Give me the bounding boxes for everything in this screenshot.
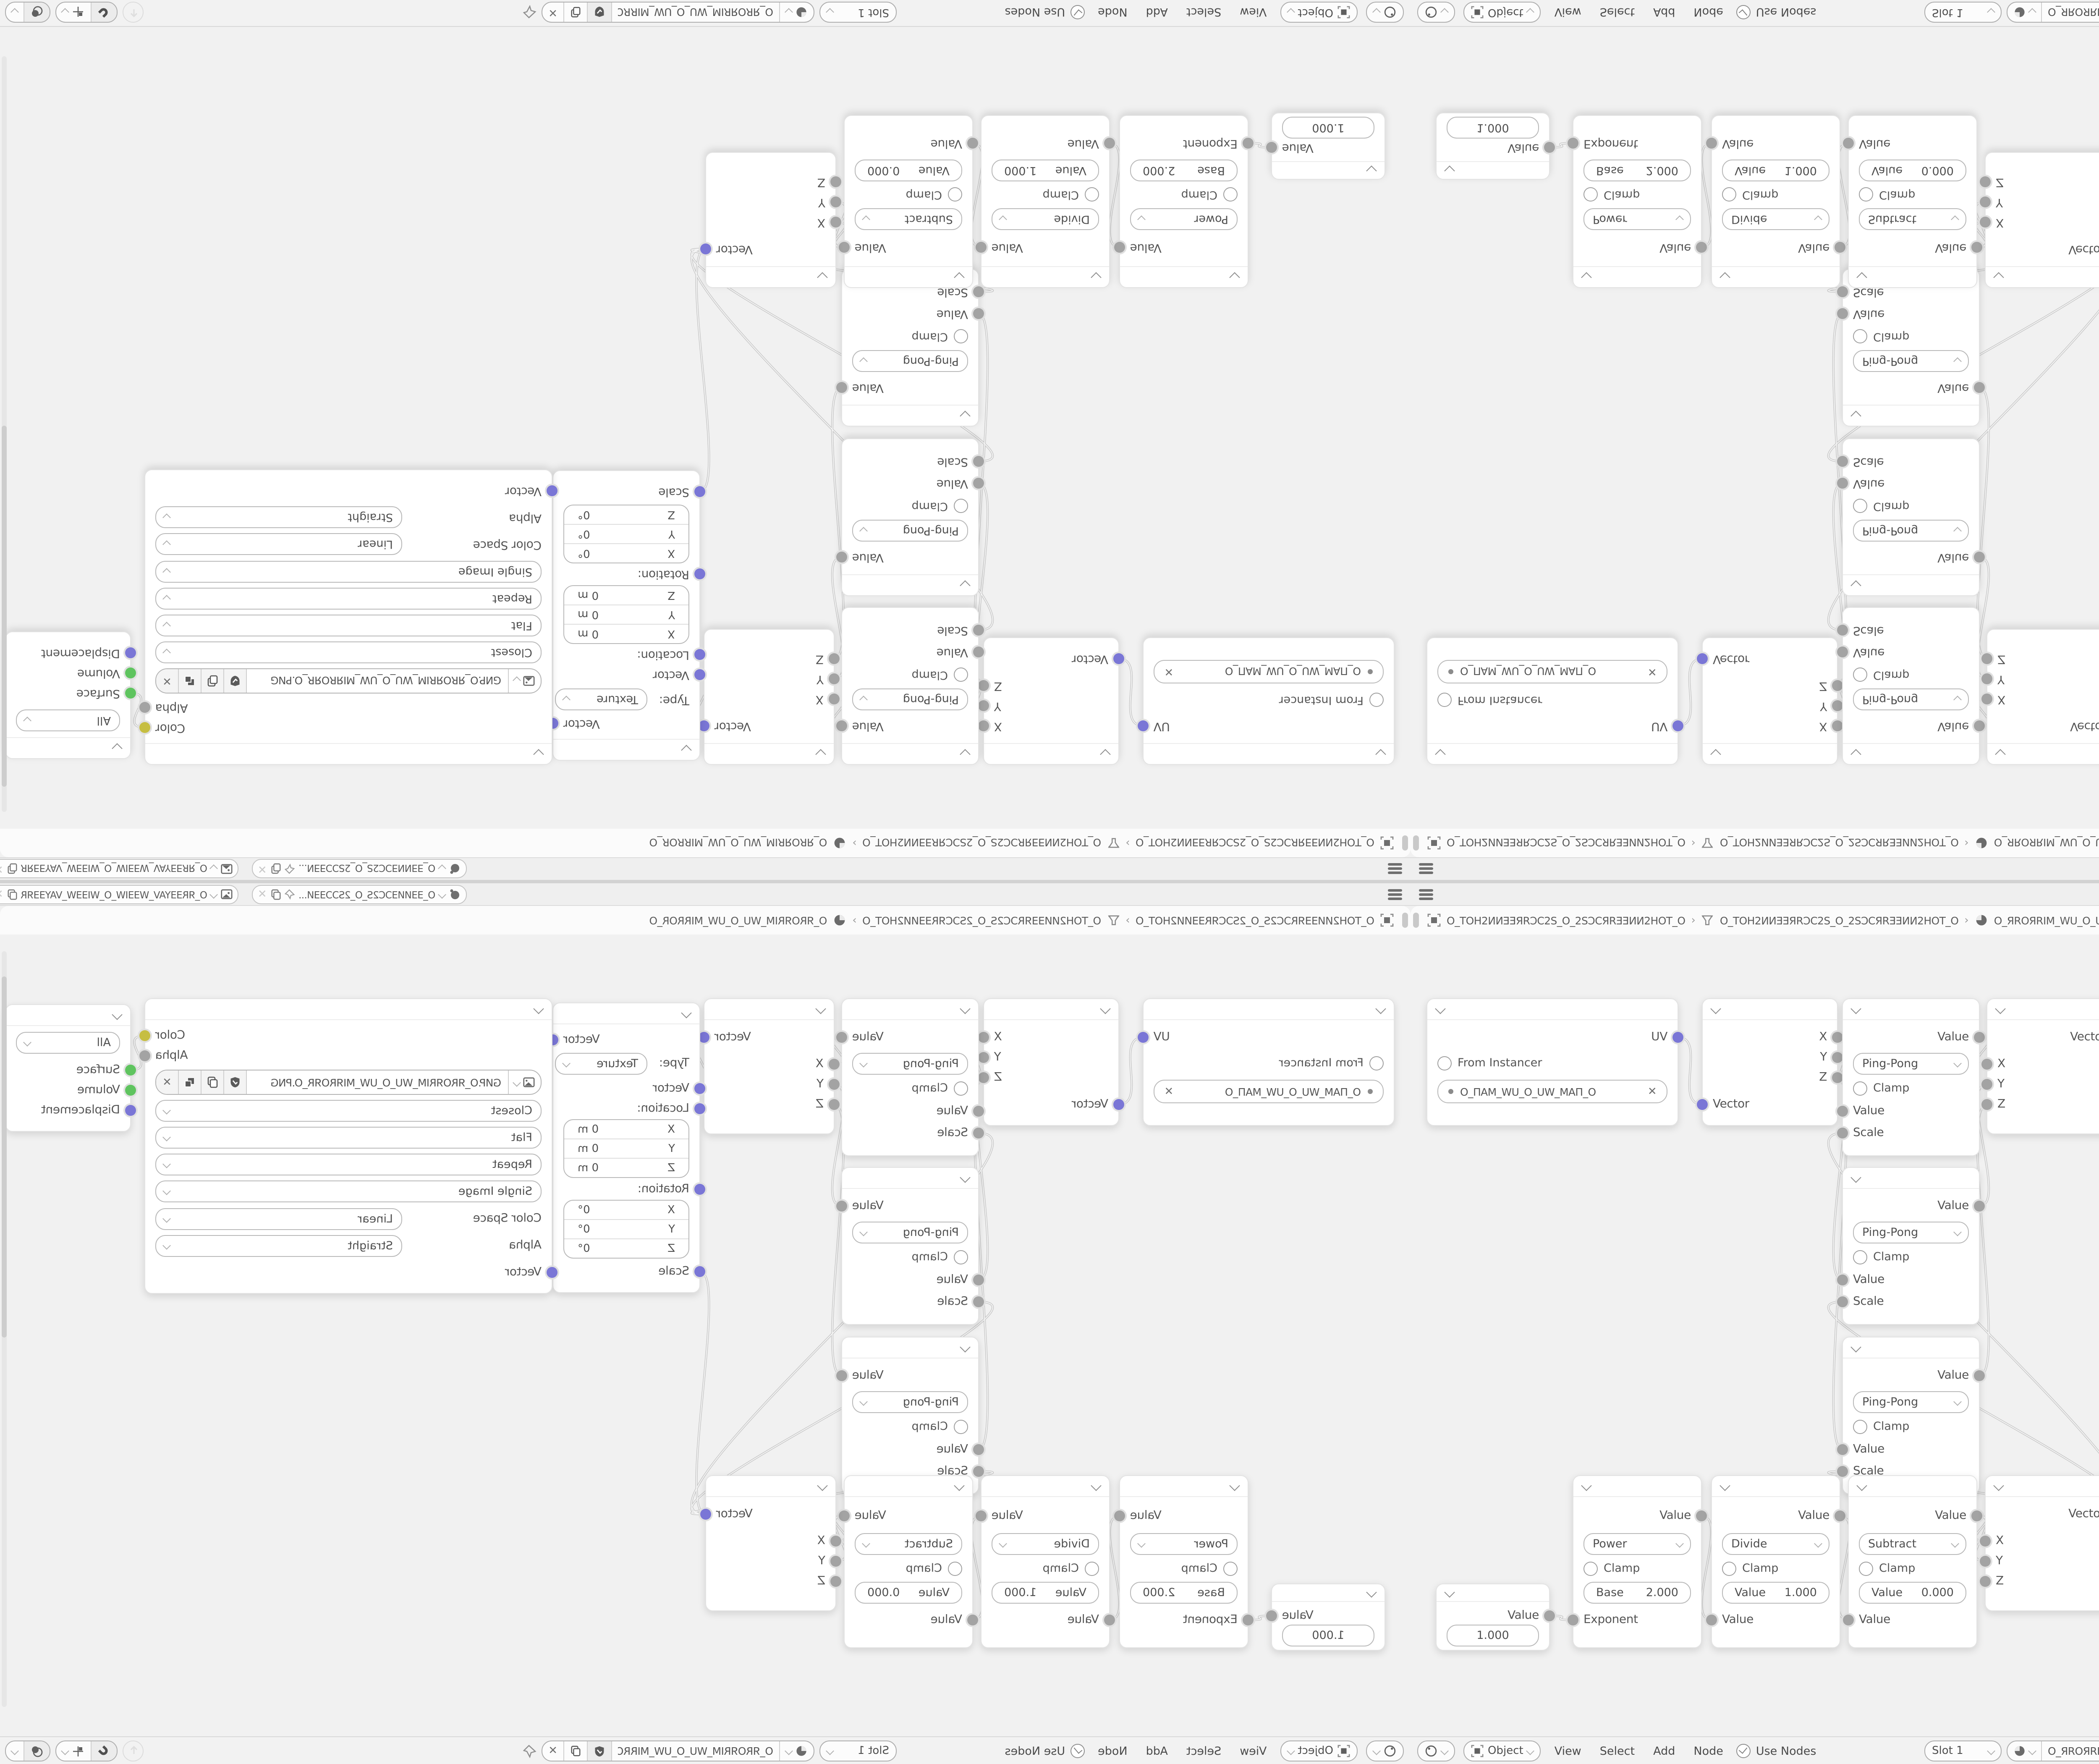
use-nodes-checkbox[interactable]: Use Nodes [1005, 5, 1085, 19]
checkbox-icon[interactable] [954, 1081, 968, 1095]
checkbox-icon[interactable] [1853, 1419, 1867, 1434]
pin-icon[interactable] [523, 5, 537, 19]
uv-map-selector[interactable]: O_ПAM_WU_O_UW_MAП_O ✕ [1154, 1080, 1384, 1103]
menu-view[interactable]: View [1549, 1744, 1586, 1758]
socket-y-input[interactable] [829, 1079, 840, 1090]
use-nodes-checkbox[interactable]: Use Nodes [1005, 1744, 1085, 1758]
clamp-checkbox[interactable]: Clamp [992, 186, 1099, 203]
socket-z-input[interactable] [1981, 653, 1992, 664]
socket-value-output[interactable] [1114, 1510, 1125, 1521]
node-math-pingpong-1[interactable]: Value Ping-Pong Clamp Value Scale [1842, 998, 1980, 1156]
copy-icon[interactable] [7, 863, 18, 874]
socket-vector-input[interactable] [547, 1267, 557, 1278]
socket-value-input[interactable] [1837, 1444, 1848, 1455]
node-canvas[interactable]: UV From Instancer O_ПAM_WU_O_UW_MAП_O ✕ … [1411, 27, 2099, 829]
socket-vector-input[interactable] [694, 669, 705, 680]
checkbox-icon[interactable] [1583, 1561, 1598, 1576]
breadcrumb-material[interactable]: O_ЯROЯRIM_WU_O_UW_MIRROR_O [649, 837, 827, 849]
node-math-pingpong-1[interactable]: Value Ping-Pong Clamp Value Scale [1842, 607, 1980, 765]
node-combine-xyz-top[interactable]: Vector X Y Z [704, 998, 835, 1134]
image-name[interactable]: GИP.O_ЯROЯRIM_WU_O_UW_MIЯROЯR_O.PNG [247, 669, 509, 693]
socket-x-output[interactable] [978, 720, 989, 731]
collapse-chevron-icon[interactable] [1100, 749, 1110, 759]
socket-vector-input[interactable] [694, 1083, 705, 1094]
falloff-circles-icon[interactable] [24, 1741, 50, 1761]
node-math-divide[interactable]: Value Divide Clamp Value1.000 Value [1711, 1475, 1840, 1648]
menu-select[interactable]: Select [1595, 1744, 1640, 1758]
socket-value-output[interactable] [836, 720, 847, 731]
shader-type-dropdown[interactable]: Object [1280, 2, 1358, 23]
from-instancer-checkbox[interactable]: From Instancer [1154, 692, 1384, 709]
socket-location-input[interactable] [694, 1103, 705, 1114]
operation-dropdown[interactable]: Divide [992, 1533, 1099, 1555]
clamp-checkbox[interactable]: Clamp [1722, 1560, 1829, 1577]
collapse-chevron-icon[interactable] [1850, 411, 1861, 421]
node-uv-map[interactable]: UV From Instancer O_ПAM_WU_O_UW_MAП_O ✕ [1143, 998, 1395, 1126]
node-mapping[interactable]: Vector Type: Texture Vector Location: X0… [552, 470, 700, 761]
collapse-chevron-icon[interactable] [960, 411, 970, 421]
node-uv-map[interactable]: UV From Instancer O_ПAM_WU_O_UW_MAП_O ✕ [1426, 637, 1678, 765]
clamp-checkbox[interactable]: Clamp [1583, 186, 1691, 203]
socket-rotation-input[interactable] [694, 568, 705, 579]
unlink-button[interactable]: ✕ [542, 1741, 564, 1761]
socket-volume-input[interactable] [125, 667, 136, 678]
collapse-chevron-icon[interactable] [112, 743, 122, 754]
auto-render-ghost-button[interactable] [123, 1740, 144, 1761]
checkbox-icon[interactable] [1853, 1250, 1867, 1264]
menu-node[interactable]: Node [1688, 5, 1728, 19]
checkbox-icon[interactable] [1722, 188, 1736, 202]
operation-dropdown[interactable]: Subtract [855, 1533, 962, 1555]
pack-image-button[interactable] [179, 669, 202, 693]
socket-scale-input[interactable] [1837, 1128, 1848, 1138]
color-space-dropdown[interactable]: Linear [155, 1208, 402, 1230]
operation-dropdown[interactable]: Power [1130, 1533, 1238, 1555]
socket-value-output[interactable] [836, 1201, 847, 1212]
node-value[interactable]: Value 1.000 [1436, 1583, 1550, 1651]
node-header[interactable] [1427, 743, 1678, 764]
image-browse-dropdown[interactable] [509, 1070, 541, 1094]
socket-value-output[interactable] [976, 1510, 987, 1521]
socket-y-output[interactable] [978, 1052, 989, 1063]
socket-value-output[interactable] [976, 242, 987, 253]
snap-target-dropdown[interactable] [56, 3, 92, 22]
socket-y-input[interactable] [1980, 196, 1991, 207]
socket-y-input[interactable] [830, 196, 841, 207]
from-instancer-checkbox[interactable]: From Instancer [1154, 1055, 1384, 1071]
node-image-texture[interactable]: Color Alpha GИP.O_ЯROЯRIM_WU_O_UW_MIЯROЯ… [144, 998, 552, 1294]
color-space-dropdown[interactable]: Linear [155, 533, 402, 555]
menu-node[interactable]: Node [1093, 1744, 1132, 1758]
rotation-vector-field[interactable]: X0° Y0° Z0° [563, 1200, 689, 1259]
operation-dropdown[interactable]: Ping-Pong [852, 350, 968, 372]
output-target-dropdown[interactable]: All [16, 709, 120, 731]
node-math-pingpong-3[interactable]: Value Ping-Pong Clamp Value Scale [1842, 1337, 1980, 1494]
unlink-button[interactable]: ✕ [542, 3, 564, 22]
clamp-checkbox[interactable]: Clamp [852, 1418, 968, 1435]
location-vector-field[interactable]: X0 m Y0 m Z0 m [563, 1119, 689, 1178]
clamp-checkbox[interactable]: Clamp [1583, 1560, 1691, 1577]
material-name[interactable]: O_ЯROЯRIM_WU_O_UW_MIRROR_O [618, 6, 773, 18]
base-field[interactable]: Base2.000 [1583, 160, 1691, 181]
image-datablock-row[interactable]: GИP.O_ЯROЯRIM_WU_O_UW_MIЯROЯR_O.PNG ✕ [155, 1070, 542, 1095]
checkbox-icon[interactable] [1722, 1561, 1736, 1576]
collapse-chevron-icon[interactable] [1375, 749, 1386, 759]
collapse-chevron-icon[interactable] [1856, 1480, 1867, 1491]
material-datablock-widget[interactable]: O_ЯROЯRIM_WU_O_UW_MIRROR_O ✕ [542, 1740, 814, 1761]
material-name[interactable]: O_ЯROЯRIM_WU_O_UW_MIRROR_O [2048, 6, 2099, 18]
checkbox-icon[interactable] [1369, 1056, 1384, 1070]
socket-value-input[interactable] [1104, 1615, 1115, 1625]
menu-select[interactable]: Select [1181, 1744, 1226, 1758]
operation-dropdown[interactable]: Power [1583, 1533, 1691, 1555]
value-field[interactable]: 1.000 [1447, 1625, 1539, 1646]
socket-value-output[interactable] [836, 1370, 847, 1381]
collapse-chevron-icon[interactable] [1091, 1480, 1101, 1491]
checkbox-checked-icon[interactable] [1737, 5, 1751, 19]
material-browse-dropdown[interactable] [780, 1741, 814, 1761]
clamp-checkbox[interactable]: Clamp [1130, 186, 1238, 203]
node-math-subtract[interactable]: Value Subtract Clamp Value0.000 Value [1848, 1475, 1977, 1648]
node-canvas[interactable]: UV From Instancer O_ПAM_WU_O_UW_MAП_O ✕ … [1411, 934, 2099, 1736]
socket-value-output[interactable] [836, 1032, 847, 1043]
node-math-subtract[interactable]: Value Subtract Clamp Value0.000 Value [844, 1475, 973, 1648]
operation-dropdown[interactable]: Ping-Pong [852, 1222, 968, 1243]
collapse-chevron-icon[interactable] [960, 1342, 970, 1352]
falloff-circles-icon[interactable] [24, 3, 50, 22]
value-field[interactable]: Value0.000 [1859, 1582, 1966, 1604]
socket-color-output[interactable] [139, 722, 150, 733]
base-field[interactable]: Base2.000 [1583, 1582, 1691, 1604]
socket-x-output[interactable] [1832, 1032, 1843, 1043]
checkbox-icon[interactable] [1583, 188, 1598, 202]
checkbox-icon[interactable] [1369, 693, 1384, 707]
node-header[interactable] [1144, 999, 1394, 1020]
shader-type-dropdown[interactable]: Object [1463, 1740, 1541, 1761]
editor-type-dropdown[interactable] [1366, 1740, 1404, 1761]
collapse-chevron-icon[interactable] [1366, 1587, 1377, 1597]
socket-value-input[interactable] [973, 1275, 984, 1285]
node-combine-xyz-bottom[interactable]: Vector X Y Z [1985, 152, 2099, 288]
socket-value-output[interactable] [1544, 142, 1555, 153]
location-vector-field[interactable]: X0 m Y0 m Z0 m [563, 585, 689, 644]
clamp-checkbox[interactable]: Clamp [1130, 1560, 1238, 1577]
socket-x-output[interactable] [978, 1032, 989, 1043]
operation-dropdown[interactable]: Ping-Pong [1853, 1391, 1969, 1413]
checkbox-icon[interactable] [1853, 330, 1867, 344]
editor-type-dropdown[interactable] [1417, 1740, 1455, 1761]
material-datablock-widget[interactable]: O_ЯROЯRIM_WU_O_UW_MIRROR_O ✕ [2007, 2, 2099, 23]
checkbox-checked-icon[interactable] [1070, 5, 1084, 19]
node-separate-xyz[interactable]: X Y Z Vector [983, 637, 1119, 765]
operation-dropdown[interactable]: Ping-Pong [1853, 1222, 1969, 1243]
socket-value-output[interactable] [1971, 1510, 1982, 1521]
collapse-chevron-icon[interactable] [1229, 1480, 1240, 1491]
socket-surface-input[interactable] [125, 1065, 136, 1076]
socket-value-output[interactable] [1971, 242, 1982, 253]
operation-dropdown[interactable]: Ping-Pong [852, 1391, 968, 1413]
socket-scale-input[interactable] [1837, 286, 1848, 297]
socket-scale-input[interactable] [973, 1128, 984, 1138]
socket-x-output[interactable] [1832, 720, 1843, 731]
collapse-chevron-icon[interactable] [1444, 165, 1455, 176]
socket-x-input[interactable] [1981, 694, 1992, 704]
socket-x-input[interactable] [829, 1059, 840, 1070]
collapse-chevron-icon[interactable] [960, 1003, 970, 1014]
operation-dropdown[interactable]: Subtract [855, 208, 962, 230]
operation-dropdown[interactable]: Ping-Pong [852, 688, 968, 710]
collapse-chevron-icon[interactable] [1995, 1003, 2005, 1014]
node-combine-xyz-bottom[interactable]: Vector X Y Z [1985, 1475, 2099, 1611]
socket-exponent-input[interactable] [1568, 138, 1578, 149]
fake-user-shield-button[interactable] [224, 1070, 247, 1094]
operation-dropdown[interactable]: Subtract [1859, 1533, 1966, 1555]
node-material-output[interactable]: All Surface Volume Displacement [5, 631, 131, 759]
menu-select[interactable]: Select [1181, 5, 1226, 19]
output-target-dropdown[interactable]: All [16, 1032, 120, 1054]
collapse-chevron-icon[interactable] [1850, 580, 1861, 591]
socket-value-output[interactable] [1974, 1370, 1985, 1381]
collapse-chevron-icon[interactable] [815, 749, 826, 759]
clamp-checkbox[interactable]: Clamp [992, 1560, 1099, 1577]
material-slot-dropdown[interactable]: Slot 1 [819, 1740, 897, 1761]
snap-magnet-icon[interactable] [92, 3, 117, 22]
socket-uv-output[interactable] [1138, 1032, 1149, 1043]
breadcrumb-view-layer[interactable]: O_TOH2ͶИƎƎЯRƆC2S_O_2SƆCЯRƎƎИͶ2HOT_O [863, 914, 1101, 926]
menu-view[interactable]: View [1235, 5, 1272, 19]
node-math-pingpong-1[interactable]: Value Ping-Pong Clamp Value Scale [841, 998, 979, 1156]
use-nodes-checkbox[interactable]: Use Nodes [1737, 1744, 1816, 1758]
socket-x-input[interactable] [829, 694, 840, 704]
node-header[interactable] [1144, 743, 1394, 764]
socket-vector-input[interactable] [1697, 1099, 1708, 1110]
socket-uv-output[interactable] [1138, 720, 1149, 731]
material-slot-dropdown[interactable]: Slot 1 [1924, 2, 2002, 23]
collapse-chevron-icon[interactable] [815, 1003, 826, 1014]
clamp-checkbox[interactable]: Clamp [852, 498, 968, 515]
collapse-chevron-icon[interactable] [1993, 1480, 2004, 1491]
breadcrumb-view-layer[interactable]: O_TOH2ͶИƎƎЯRƆC2S_O_2SƆCЯRƎƎИͶ2HOT_O [1720, 837, 1958, 849]
socket-value-input[interactable] [1706, 1615, 1717, 1625]
collapse-chevron-icon[interactable] [1995, 749, 2005, 759]
image-name[interactable]: GИP.O_ЯROЯRIM_WU_O_UW_MIЯROЯR_O.PNG [247, 1070, 509, 1094]
socket-scale-input[interactable] [973, 1466, 984, 1477]
node-combine-xyz-bottom[interactable]: Vector X Y Z [705, 152, 836, 288]
socket-value-output[interactable] [1835, 242, 1845, 253]
pin-icon[interactable] [523, 1744, 537, 1758]
node-value[interactable]: Value 1.000 [1436, 113, 1550, 180]
fake-user-shield-button[interactable] [588, 1741, 612, 1761]
unlink-button[interactable]: ✕ [156, 669, 179, 693]
socket-y-output[interactable] [978, 700, 989, 711]
operation-dropdown[interactable]: Divide [1722, 1533, 1829, 1555]
menu-view[interactable]: View [1235, 1744, 1272, 1758]
alpha-mode-dropdown[interactable]: Straight [155, 506, 402, 528]
menu-add[interactable]: Add [1648, 5, 1680, 19]
node-combine-xyz-bottom[interactable]: Vector X Y Z [705, 1475, 836, 1611]
menu-add[interactable]: Add [1648, 1744, 1680, 1758]
socket-displacement-input[interactable] [125, 647, 136, 658]
socket-exponent-input[interactable] [1243, 1615, 1254, 1625]
material-browse-dropdown[interactable] [2007, 1741, 2041, 1761]
material-name[interactable]: O_ЯROЯRIM_WU_O_UW_MIRROR_O [618, 1745, 773, 1757]
collapse-chevron-icon[interactable] [1850, 1003, 1861, 1014]
interpolation-dropdown[interactable]: Closest [155, 1100, 542, 1122]
area-drag-handle[interactable] [1402, 835, 1408, 851]
socket-scale-input[interactable] [1837, 625, 1848, 636]
operation-dropdown[interactable]: Ping-Pong [1853, 688, 1969, 710]
from-instancer-checkbox[interactable]: From Instancer [1437, 1055, 1667, 1071]
copy-icon[interactable] [270, 889, 281, 900]
pin-icon[interactable] [285, 889, 296, 900]
socket-value-output[interactable] [1114, 242, 1125, 253]
socket-z-input[interactable] [1980, 1576, 1991, 1587]
socket-value-output[interactable] [1544, 1610, 1555, 1621]
socket-value-input[interactable] [967, 138, 978, 149]
socket-vector-output[interactable] [700, 1509, 711, 1520]
node-canvas[interactable]: UV From Instancer O_ПAM_WU_O_UW_MAП_O ✕ … [0, 27, 1411, 829]
value-field[interactable]: Value1.000 [1722, 1582, 1829, 1604]
collapse-chevron-icon[interactable] [1229, 272, 1240, 283]
breadcrumb-scene[interactable]: O_TOH2ͶИƎƎЯRƆC2S_O_2SƆCЯRƎƎИͶ2HOT_O [1447, 837, 1685, 849]
socket-y-output[interactable] [1832, 1052, 1843, 1063]
close-icon[interactable]: ✕ [1648, 665, 1657, 678]
node-uv-map[interactable]: UV From Instancer O_ПAM_WU_O_UW_MAП_O ✕ [1143, 637, 1395, 765]
hamburger-menu-icon[interactable] [1419, 863, 1433, 876]
breadcrumb-material[interactable]: O_ЯROЯRIM_WU_O_UW_MIRROR_O [1994, 914, 2099, 926]
socket-value-output[interactable] [1835, 1510, 1845, 1521]
checkbox-icon[interactable] [1085, 1561, 1099, 1576]
clamp-checkbox[interactable]: Clamp [852, 328, 968, 345]
socket-rotation-input[interactable] [694, 1184, 705, 1195]
shader-type-dropdown[interactable]: Object [1463, 2, 1541, 23]
value-field[interactable]: Value0.000 [855, 1582, 962, 1604]
socket-value-input[interactable] [967, 1615, 978, 1625]
checkbox-icon[interactable] [1223, 1561, 1238, 1576]
breadcrumb-material[interactable]: O_ЯROЯRIM_WU_O_UW_MIRROR_O [1994, 837, 2099, 849]
area-drag-handle[interactable] [1413, 835, 1419, 851]
snapping-widget[interactable] [55, 2, 118, 23]
checkbox-icon[interactable] [954, 1419, 968, 1434]
socket-scale-input[interactable] [973, 456, 984, 467]
node-math-pingpong-2[interactable]: Value Ping-Pong Clamp Value Scale [841, 438, 979, 596]
collapse-chevron-icon[interactable] [1100, 1003, 1110, 1014]
socket-location-input[interactable] [694, 649, 705, 660]
socket-uv-output[interactable] [1672, 1032, 1683, 1043]
socket-exponent-input[interactable] [1568, 1615, 1578, 1625]
socket-value-input[interactable] [1837, 646, 1848, 657]
socket-y-input[interactable] [1981, 673, 1992, 684]
collapse-chevron-icon[interactable] [1720, 1480, 1730, 1491]
node-value[interactable]: Value 1.000 [1271, 113, 1385, 180]
operation-dropdown[interactable]: Power [1130, 208, 1238, 230]
material-datablock-widget[interactable]: O_ЯROЯRIM_WU_O_UW_MIRROR_O ✕ [542, 2, 814, 23]
node-uv-map[interactable]: UV From Instancer O_ПAM_WU_O_UW_MAП_O ✕ [1426, 998, 1678, 1126]
base-field[interactable]: Base2.000 [1130, 1582, 1238, 1604]
socket-scale-input[interactable] [973, 625, 984, 636]
value-field[interactable]: Value0.000 [855, 160, 962, 181]
collapse-chevron-icon[interactable] [954, 272, 964, 283]
collapse-chevron-icon[interactable] [1366, 165, 1377, 176]
socket-value-input[interactable] [1706, 138, 1717, 149]
node-value[interactable]: Value 1.000 [1271, 1583, 1385, 1651]
socket-z-output[interactable] [978, 680, 989, 691]
collapse-chevron-icon[interactable] [1581, 272, 1591, 283]
overlays-widget[interactable] [5, 2, 50, 23]
socket-y-input[interactable] [830, 1556, 841, 1567]
socket-vector-input[interactable] [547, 485, 557, 496]
socket-value-output[interactable] [839, 1510, 850, 1521]
collapse-chevron-icon[interactable] [1710, 1003, 1721, 1014]
collapse-chevron-icon[interactable] [1710, 749, 1721, 759]
clamp-checkbox[interactable]: Clamp [855, 1560, 962, 1577]
socket-vector-input[interactable] [1113, 1099, 1124, 1110]
operation-dropdown[interactable]: Subtract [1859, 208, 1966, 230]
collapse-chevron-icon[interactable] [1850, 749, 1861, 759]
node-combine-xyz-top[interactable]: Vector X Y Z [1986, 998, 2099, 1134]
socket-z-input[interactable] [830, 176, 841, 187]
image-browse-dropdown[interactable] [509, 669, 541, 693]
source-dropdown[interactable]: Single Image [155, 1180, 542, 1202]
node-math-pingpong-2[interactable]: Value Ping-Pong Clamp Value Scale [1842, 438, 1980, 596]
socket-z-output[interactable] [1832, 680, 1843, 691]
collapse-chevron-icon[interactable] [1850, 1342, 1861, 1352]
socket-value-output[interactable] [1696, 242, 1707, 253]
socket-value-output[interactable] [836, 382, 847, 393]
operation-dropdown[interactable]: Divide [992, 208, 1099, 230]
auto-render-ghost-button[interactable] [123, 2, 144, 23]
checkbox-icon[interactable] [954, 330, 968, 344]
pack-image-button[interactable] [179, 1070, 202, 1094]
node-math-pingpong-3[interactable]: Value Ping-Pong Clamp Value Scale [1842, 269, 1980, 427]
value-field[interactable]: Value1.000 [1722, 160, 1829, 181]
checkbox-checked-icon[interactable] [1070, 1744, 1084, 1758]
socket-value-output[interactable] [1974, 382, 1985, 393]
node-math-power[interactable]: Value Power Clamp Base2.000 Exponent [1573, 115, 1702, 288]
node-math-divide[interactable]: Value Divide Clamp Value1.000 Value [981, 1475, 1110, 1648]
socket-y-input[interactable] [1981, 1079, 1992, 1090]
clamp-checkbox[interactable]: Clamp [852, 1080, 968, 1097]
value-field[interactable]: 1.000 [1282, 1625, 1374, 1646]
collapse-chevron-icon[interactable] [960, 1172, 970, 1183]
node-header[interactable] [1427, 999, 1678, 1020]
socket-value-input[interactable] [1843, 1615, 1854, 1625]
value-field[interactable]: 1.000 [1447, 117, 1539, 139]
value-field[interactable]: 1.000 [1282, 117, 1374, 139]
node-mapping[interactable]: Vector Type: Texture Vector Location: X0… [552, 1002, 700, 1293]
menu-add[interactable]: Add [1141, 1744, 1173, 1758]
operation-dropdown[interactable]: Ping-Pong [852, 520, 968, 542]
socket-value-input[interactable] [973, 308, 984, 319]
clamp-checkbox[interactable]: Clamp [855, 186, 962, 203]
node-material-output[interactable]: All Surface Volume Displacement [5, 1004, 131, 1132]
copy-button[interactable] [202, 1070, 224, 1094]
node-math-pingpong-2[interactable]: Value Ping-Pong Clamp Value Scale [1842, 1167, 1980, 1325]
checkbox-icon[interactable] [1853, 1081, 1867, 1095]
socket-x-input[interactable] [1980, 1536, 1991, 1547]
collapse-chevron-icon[interactable] [1850, 1172, 1861, 1183]
area-drag-handle[interactable] [1402, 913, 1408, 928]
clamp-checkbox[interactable]: Clamp [1853, 328, 1969, 345]
socket-z-input[interactable] [829, 1099, 840, 1110]
operation-dropdown[interactable]: Ping-Pong [1853, 350, 1969, 372]
socket-y-output[interactable] [1832, 700, 1843, 711]
socket-value-input[interactable] [1837, 478, 1848, 489]
socket-value-output[interactable] [1974, 552, 1985, 563]
socket-y-input[interactable] [829, 673, 840, 684]
breadcrumb-material[interactable]: O_ЯROЯRIM_WU_O_UW_MIRROR_O [649, 914, 827, 926]
interpolation-dropdown[interactable]: Closest [155, 641, 542, 663]
